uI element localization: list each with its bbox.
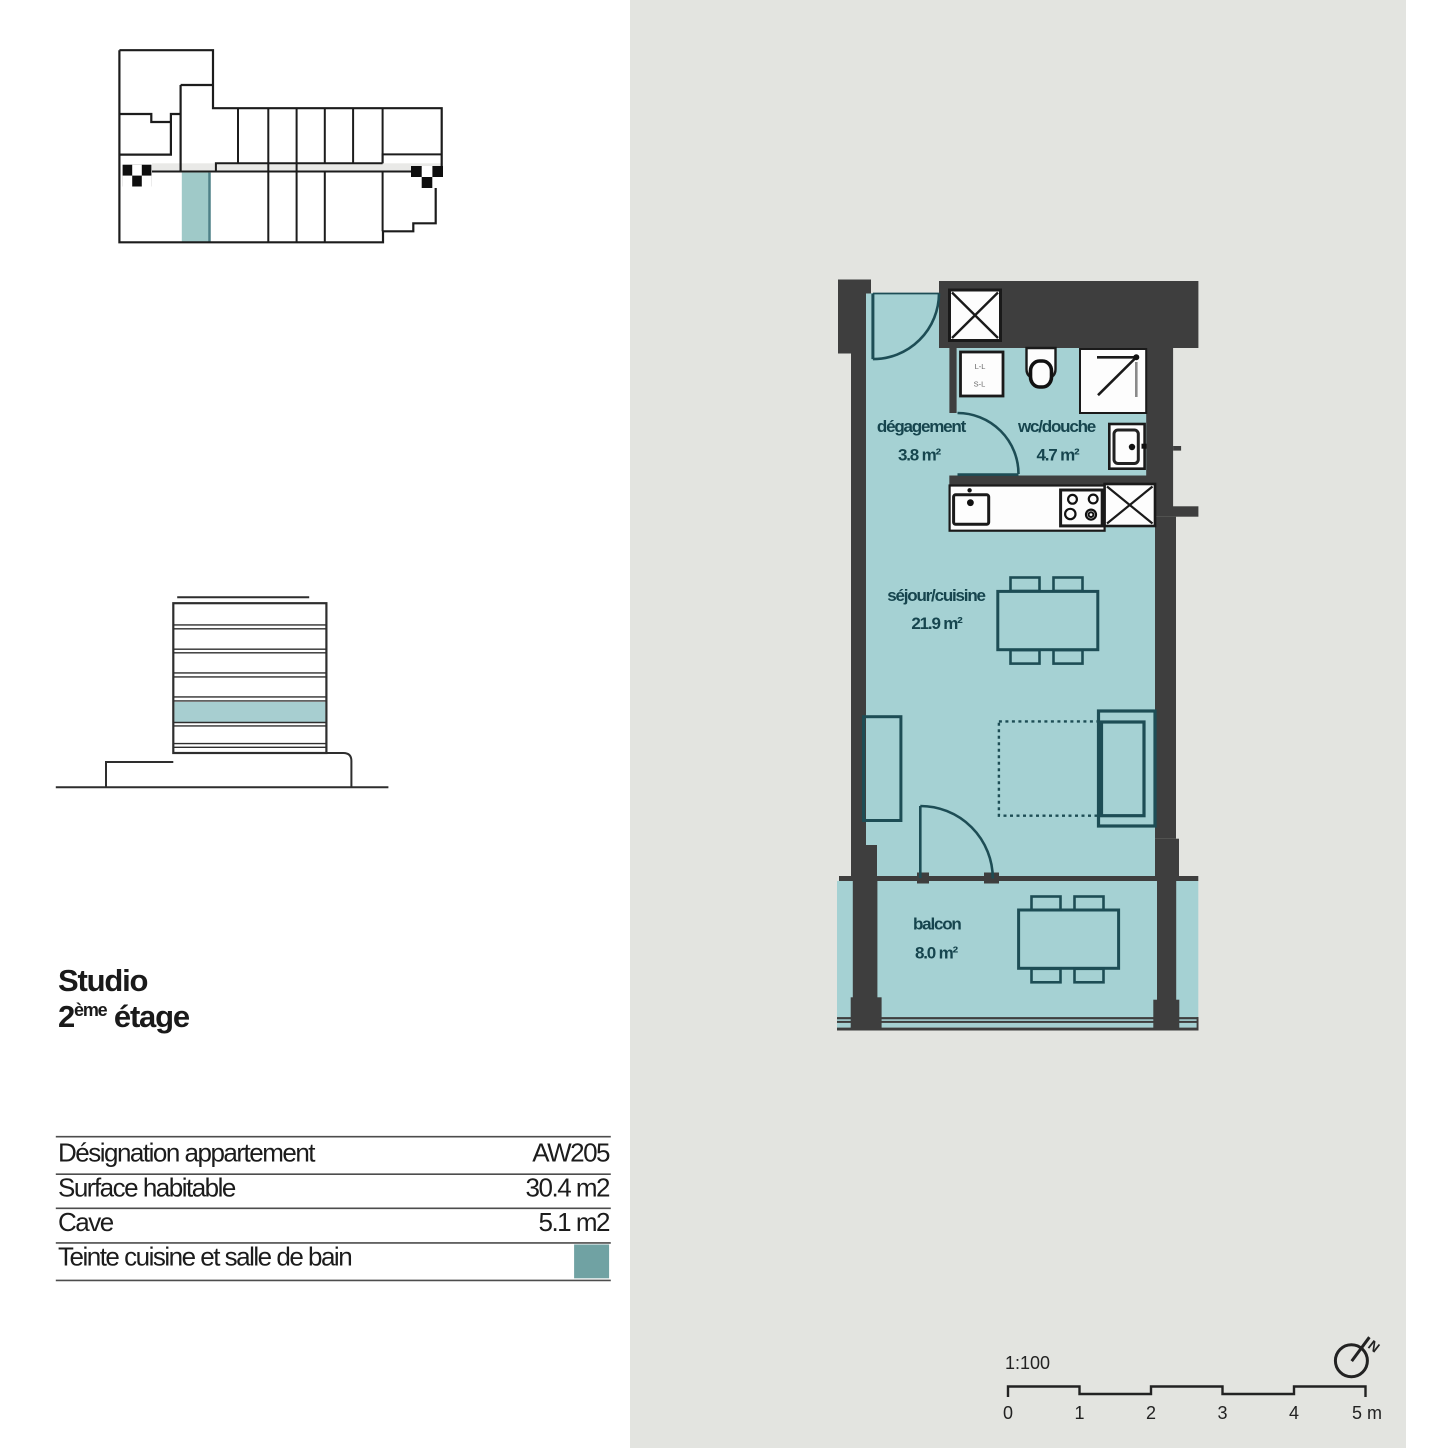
svg-text:wc/douche: wc/douche bbox=[1017, 417, 1096, 436]
svg-text:AW205: AW205 bbox=[532, 1138, 610, 1168]
svg-text:4.7 m²: 4.7 m² bbox=[1037, 446, 1080, 465]
svg-text:5 m: 5 m bbox=[1352, 1403, 1382, 1423]
svg-text:Studio: Studio bbox=[58, 963, 147, 998]
svg-text:S-L: S-L bbox=[974, 380, 986, 389]
svg-text:Cave: Cave bbox=[58, 1207, 114, 1237]
svg-text:Surface habitable: Surface habitable bbox=[58, 1173, 236, 1203]
svg-text:dégagement: dégagement bbox=[877, 417, 967, 436]
svg-text:Désignation appartement: Désignation appartement bbox=[58, 1138, 316, 1168]
svg-text:balcon: balcon bbox=[913, 915, 961, 934]
svg-text:L-L: L-L bbox=[975, 362, 986, 371]
svg-text:5.1 m2: 5.1 m2 bbox=[539, 1207, 611, 1237]
svg-text:30.4 m2: 30.4 m2 bbox=[526, 1173, 610, 1203]
svg-text:0: 0 bbox=[1003, 1403, 1013, 1423]
svg-text:3: 3 bbox=[1217, 1403, 1227, 1423]
svg-text:séjour/cuisine: séjour/cuisine bbox=[887, 586, 985, 605]
svg-text:Teinte cuisine et salle de bai: Teinte cuisine et salle de bain bbox=[58, 1242, 351, 1272]
svg-text:21.9 m²: 21.9 m² bbox=[911, 614, 963, 633]
svg-text:2: 2 bbox=[1146, 1403, 1156, 1423]
svg-text:3.8 m²: 3.8 m² bbox=[898, 446, 941, 465]
svg-text:8.0 m²: 8.0 m² bbox=[915, 944, 958, 963]
svg-text:1:100: 1:100 bbox=[1005, 1353, 1050, 1373]
svg-text:4: 4 bbox=[1289, 1403, 1299, 1423]
svg-text:1: 1 bbox=[1074, 1403, 1084, 1423]
